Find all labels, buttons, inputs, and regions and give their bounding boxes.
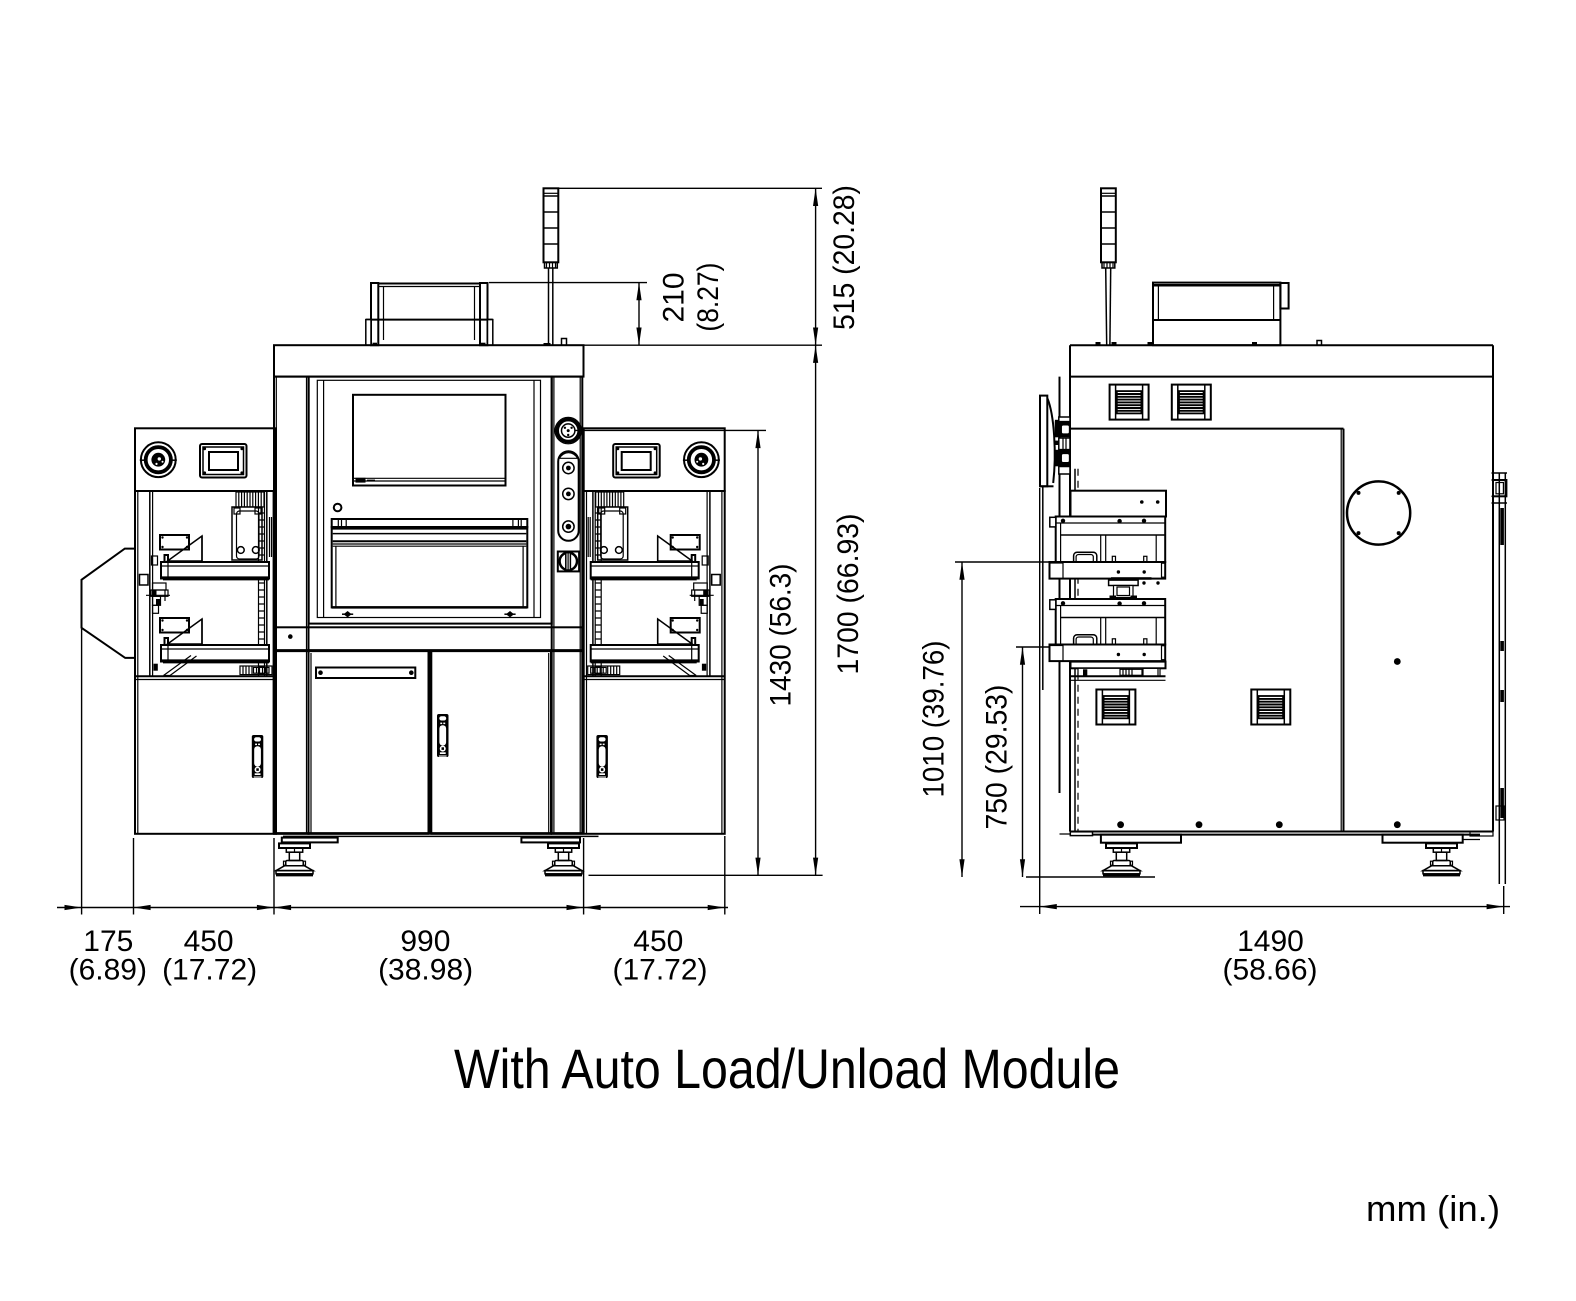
svg-text:(17.72): (17.72) (162, 954, 257, 987)
svg-text:(6.89): (6.89) (69, 954, 147, 987)
svg-text:(17.72): (17.72) (612, 954, 707, 987)
svg-text:1010 (39.76): 1010 (39.76) (917, 641, 950, 798)
svg-text:(38.98): (38.98) (378, 954, 473, 987)
svg-text:(58.66): (58.66) (1222, 954, 1317, 987)
svg-text:515 (20.28): 515 (20.28) (828, 185, 861, 330)
svg-text:With Auto Load/Unload Module: With Auto Load/Unload Module (454, 1037, 1120, 1100)
svg-text:mm (in.): mm (in.) (1366, 1188, 1500, 1229)
svg-text:750 (29.53): 750 (29.53) (981, 685, 1014, 830)
svg-text:1700 (66.93): 1700 (66.93) (832, 514, 865, 675)
svg-text:210: 210 (658, 273, 691, 323)
svg-text:(8.27): (8.27) (692, 263, 725, 332)
svg-text:1430 (56.3): 1430 (56.3) (765, 564, 798, 707)
